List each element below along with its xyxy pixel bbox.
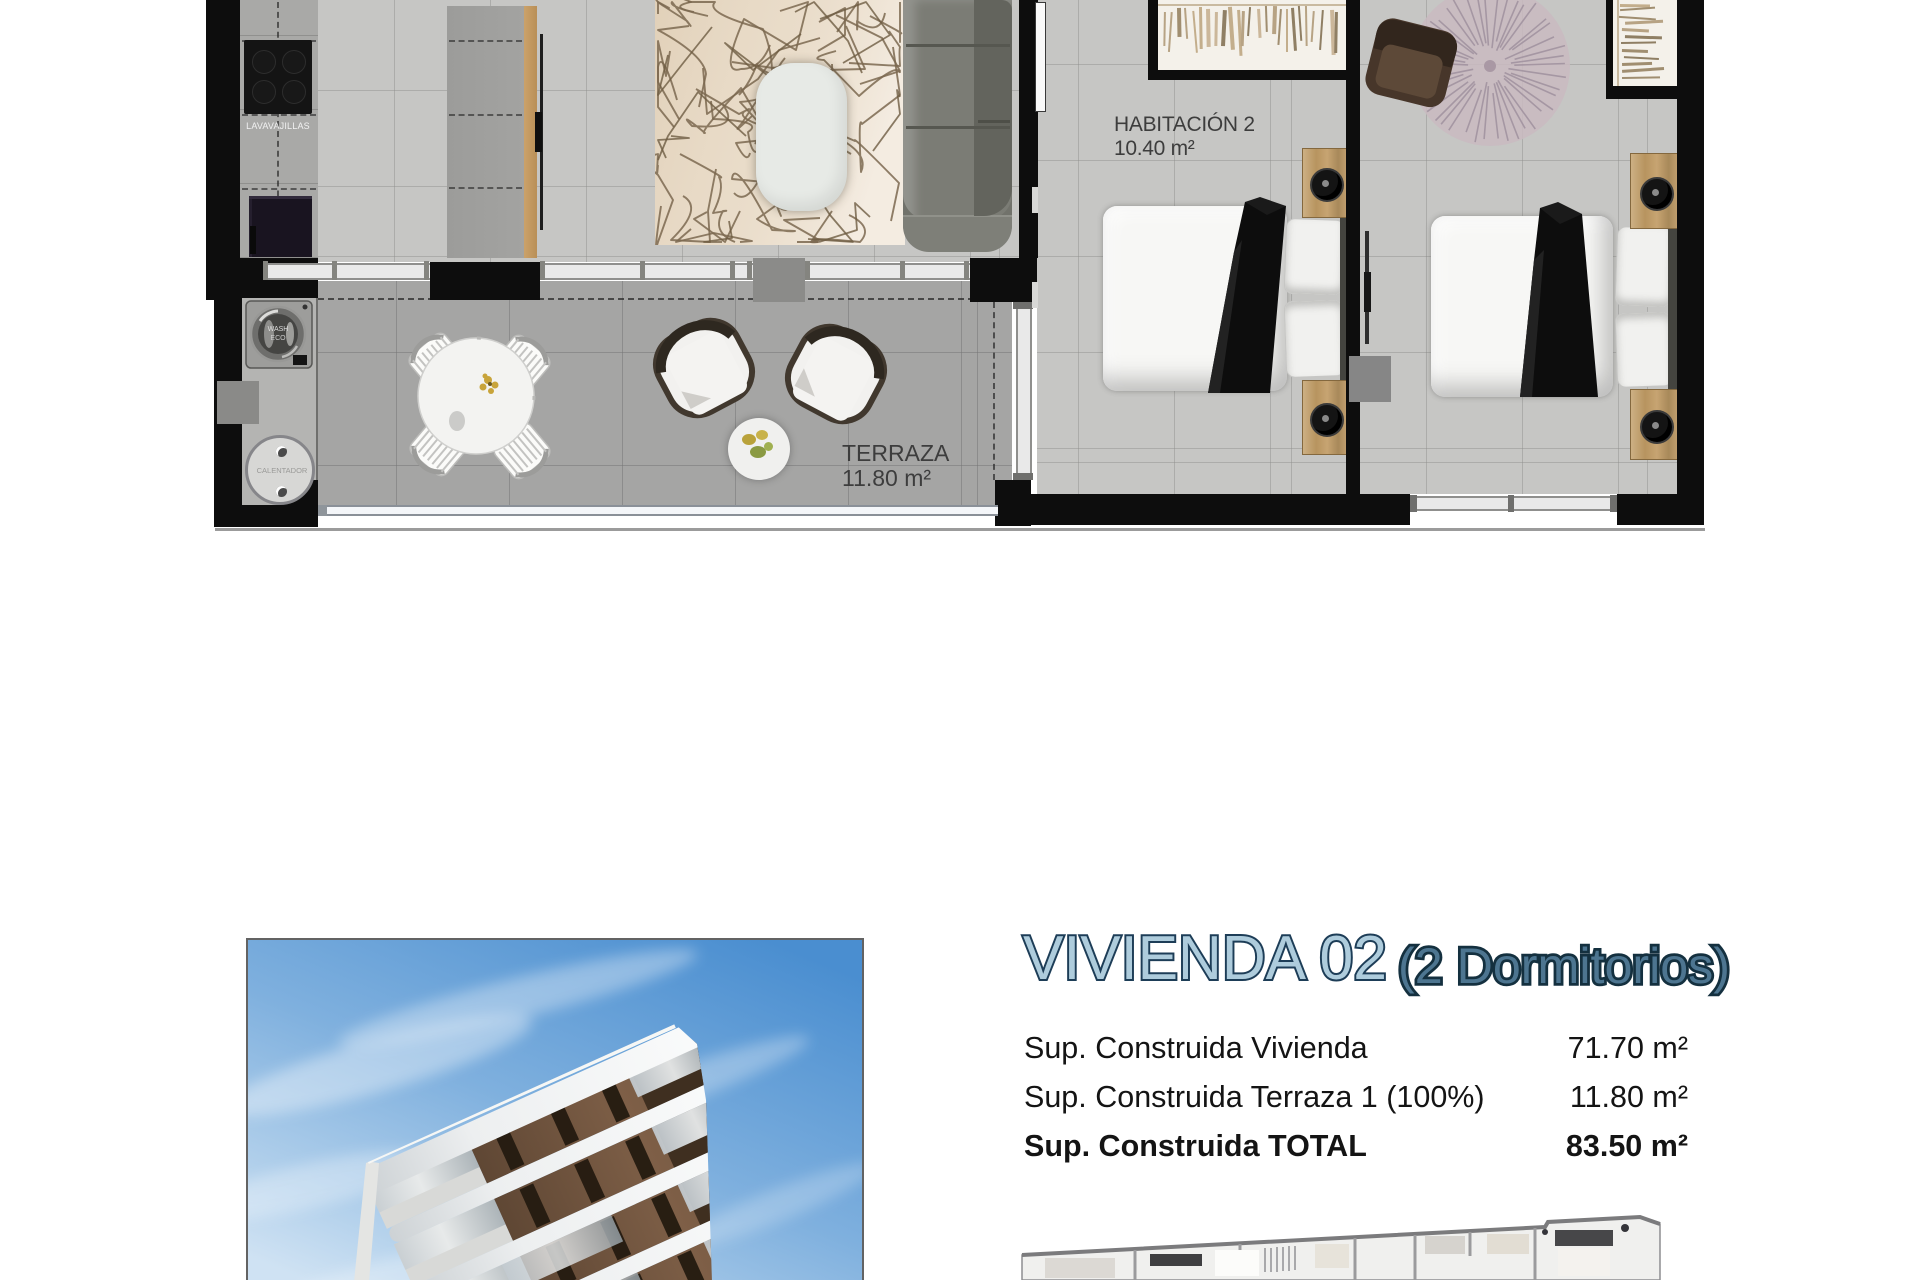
svg-text:(2 Dormitorios): (2 Dormitorios) xyxy=(1398,938,1730,994)
svg-text:WASH: WASH xyxy=(268,326,289,333)
svg-text:VIVIENDA 02: VIVIENDA 02 xyxy=(1023,924,1387,993)
svg-text:ECO: ECO xyxy=(270,335,286,342)
